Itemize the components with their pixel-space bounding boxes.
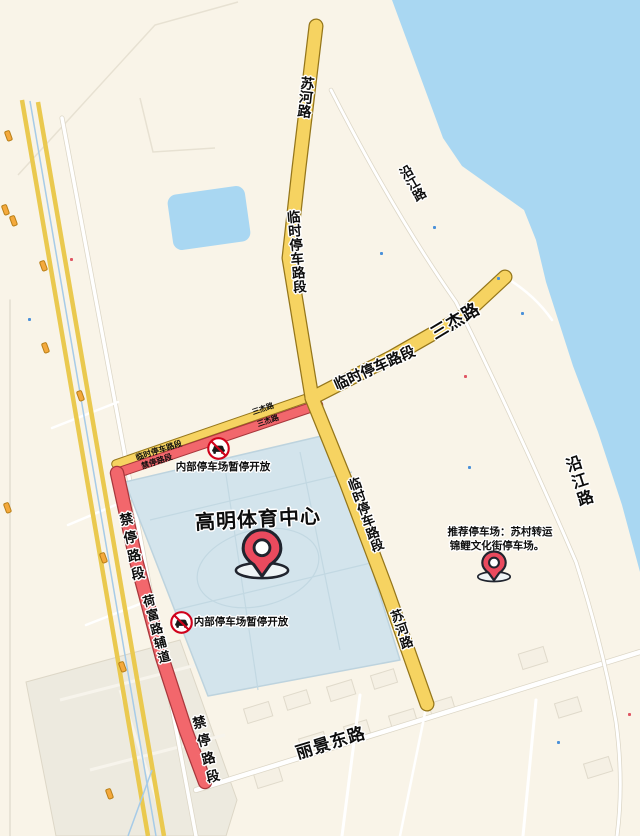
map-canvas [0, 0, 640, 836]
poi-dot [380, 252, 383, 255]
poi-dot [557, 741, 560, 744]
poi-dot [28, 318, 31, 321]
no-parking-car-icon [207, 437, 230, 460]
no-parking-car-icon [170, 611, 193, 634]
poi-dot [497, 277, 500, 280]
closed-parking-label-north: 内部停车场暂停开放 [176, 462, 271, 473]
poi-dot [628, 713, 631, 716]
road-label-suhe-north: 苏河路 [296, 75, 314, 118]
poi-dot [70, 258, 73, 261]
map-container: 苏河路 临时停车路段 三杰路 临时停车路段 临时停车路段 苏河路 沿江路 沿江路… [0, 0, 640, 836]
pond [166, 185, 251, 251]
poi-dot [464, 375, 467, 378]
recommended-parking-line1: 推荐停车场：苏村转运 [448, 527, 553, 538]
poi-dot [433, 226, 436, 229]
poi-dot [468, 466, 471, 469]
poi-dot [521, 312, 524, 315]
recommended-parking-pin-icon[interactable] [476, 549, 512, 584]
closed-parking-label-west: 内部停车场暂停开放 [194, 617, 289, 628]
venue-location-pin-icon[interactable] [233, 526, 291, 582]
